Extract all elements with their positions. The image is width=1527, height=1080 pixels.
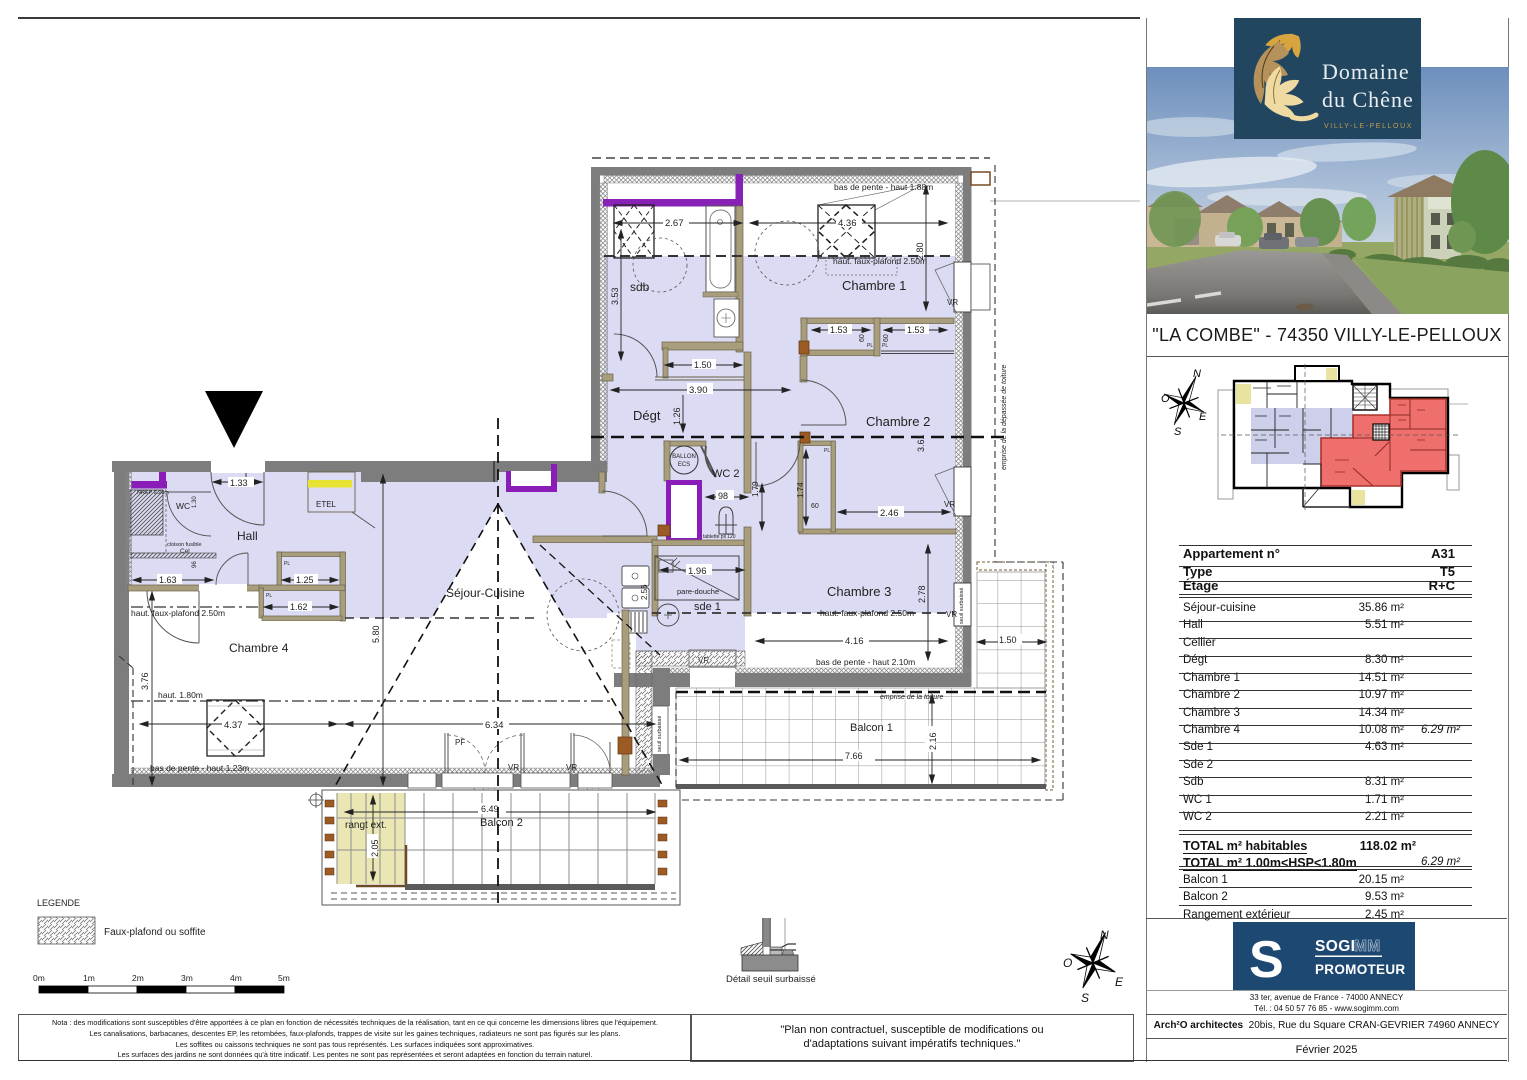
svg-text:3.90: 3.90 xyxy=(689,385,708,396)
svg-text:3.61: 3.61 xyxy=(916,434,926,452)
svg-text:Détail seuil surbaissé: Détail seuil surbaissé xyxy=(726,974,816,985)
svg-text:Chambre 3: Chambre 3 xyxy=(827,584,891,599)
svg-text:Hall: Hall xyxy=(237,529,258,543)
svg-text:1m: 1m xyxy=(83,973,95,983)
svg-text:0m: 0m xyxy=(33,973,45,983)
svg-text:O: O xyxy=(1161,393,1170,405)
svg-text:VR: VR xyxy=(508,763,519,772)
svg-text:BALLON: BALLON xyxy=(672,454,696,460)
svg-text:96: 96 xyxy=(192,561,198,568)
svg-text:2.46: 2.46 xyxy=(880,508,899,519)
svg-text:tablette pll 120: tablette pll 120 xyxy=(703,534,736,540)
svg-text:VILLY-LE-PELLOUX: VILLY-LE-PELLOUX xyxy=(1324,123,1413,130)
svg-text:Faux-plafond ou soffite: Faux-plafond ou soffite xyxy=(104,927,206,938)
svg-text:O: O xyxy=(1063,956,1072,970)
svg-text:pare-douche: pare-douche xyxy=(677,587,719,596)
svg-text:LEGENDE: LEGENDE xyxy=(37,898,80,908)
svg-text:2.67: 2.67 xyxy=(665,218,684,229)
svg-text:NREP 2.20m: NREP 2.20m xyxy=(137,490,169,496)
svg-text:S: S xyxy=(1249,931,1284,989)
svg-text:1.62: 1.62 xyxy=(290,602,308,612)
svg-text:Balcon 1: Balcon 1 xyxy=(850,722,893,734)
svg-text:1.25: 1.25 xyxy=(296,575,314,585)
svg-text:4.37: 4.37 xyxy=(224,720,243,731)
svg-text:Chambre 4: Chambre 4 xyxy=(229,641,289,655)
svg-text:haut. 1.80m: haut. 1.80m xyxy=(158,690,203,700)
svg-text:60: 60 xyxy=(883,334,890,342)
svg-text:ECS: ECS xyxy=(678,462,690,468)
svg-text:4.16: 4.16 xyxy=(845,636,864,647)
svg-text:Chambre 1: Chambre 1 xyxy=(842,278,906,293)
svg-text:PL: PL xyxy=(824,448,830,454)
svg-text:Cel: Cel xyxy=(180,548,190,555)
svg-text:60: 60 xyxy=(859,334,866,342)
svg-text:SOGI: SOGI xyxy=(1315,938,1355,955)
svg-text:WC: WC xyxy=(176,501,190,511)
svg-text:sde 1: sde 1 xyxy=(694,601,721,613)
svg-text:seuil surbaissé: seuil surbaissé xyxy=(959,588,965,624)
svg-text:1.26: 1.26 xyxy=(672,407,682,425)
svg-text:bas de pente - haut 1.23m: bas de pente - haut 1.23m xyxy=(150,763,249,773)
svg-text:S: S xyxy=(1174,426,1182,438)
svg-text:3.76: 3.76 xyxy=(140,672,150,690)
svg-text:6.34: 6.34 xyxy=(485,720,504,731)
svg-text:VR: VR xyxy=(947,298,958,307)
svg-text:5.80: 5.80 xyxy=(371,625,381,643)
svg-text:rangt ext.: rangt ext. xyxy=(345,820,387,831)
svg-text:2.80: 2.80 xyxy=(915,242,925,260)
svg-text:1.63: 1.63 xyxy=(159,575,177,585)
svg-text:sdb: sdb xyxy=(630,280,650,294)
svg-text:N: N xyxy=(1100,928,1109,942)
svg-text:1.96: 1.96 xyxy=(688,566,707,577)
svg-text:seuil surbaissé: seuil surbaissé xyxy=(657,716,663,752)
svg-text:Dégt: Dégt xyxy=(633,408,661,423)
svg-text:PL: PL xyxy=(882,343,888,349)
svg-text:emprise de la dépassée de toit: emprise de la dépassée de toiture xyxy=(1001,364,1008,470)
svg-text:3.53: 3.53 xyxy=(610,287,620,305)
svg-text:2.78: 2.78 xyxy=(917,585,927,603)
svg-text:1.53: 1.53 xyxy=(907,325,925,335)
svg-text:Domaine: Domaine xyxy=(1322,59,1410,84)
svg-text:VR: VR xyxy=(946,610,957,619)
svg-text:haut. faux-plafond 2.50m: haut. faux-plafond 2.50m xyxy=(131,608,225,618)
svg-text:1.53: 1.53 xyxy=(830,325,848,335)
svg-text:VR: VR xyxy=(944,500,955,509)
svg-text:Séjour-Cuisine: Séjour-Cuisine xyxy=(446,586,525,600)
svg-text:3m: 3m xyxy=(181,973,193,983)
svg-text:2.05: 2.05 xyxy=(370,839,380,857)
svg-text:bas de pente - haut 1.88m: bas de pente - haut 1.88m xyxy=(834,182,933,192)
svg-text:2.16: 2.16 xyxy=(928,732,938,750)
svg-text:haut. faux-plafond 2.50m: haut. faux-plafond 2.50m xyxy=(820,608,914,618)
svg-text:1.50: 1.50 xyxy=(694,360,712,370)
svg-text:1.50: 1.50 xyxy=(999,635,1017,645)
svg-text:PL: PL xyxy=(284,561,290,567)
svg-text:4m: 4m xyxy=(230,973,242,983)
svg-text:5m: 5m xyxy=(278,973,290,983)
svg-text:7.66: 7.66 xyxy=(845,751,863,761)
svg-text:ETEL: ETEL xyxy=(316,500,337,509)
svg-text:1.79: 1.79 xyxy=(751,481,760,497)
svg-text:bas de pente - haut 2.10m: bas de pente - haut 2.10m xyxy=(816,657,915,667)
svg-text:PF: PF xyxy=(455,738,465,747)
svg-text:4.36: 4.36 xyxy=(838,218,857,229)
svg-text:PL: PL xyxy=(266,593,272,599)
svg-text:Chambre 2: Chambre 2 xyxy=(866,414,930,429)
svg-text:2.56: 2.56 xyxy=(640,584,649,600)
svg-text:2m: 2m xyxy=(132,973,144,983)
svg-text:1.74: 1.74 xyxy=(796,482,805,498)
svg-text:WC 2: WC 2 xyxy=(712,468,740,480)
svg-text:1.30: 1.30 xyxy=(192,496,198,508)
svg-text:6.49: 6.49 xyxy=(481,804,499,814)
svg-text:haut. faux-plafond 2.50m: haut. faux-plafond 2.50m xyxy=(833,256,927,266)
svg-text:E: E xyxy=(1199,411,1207,423)
svg-text:S: S xyxy=(1081,991,1089,1005)
svg-text:du Chêne: du Chêne xyxy=(1322,87,1414,112)
svg-text:98: 98 xyxy=(718,491,728,501)
svg-text:PROMOTEUR: PROMOTEUR xyxy=(1315,962,1405,977)
svg-text:N: N xyxy=(1193,368,1201,380)
svg-text:VR: VR xyxy=(566,763,577,772)
svg-text:1.33: 1.33 xyxy=(230,478,248,488)
svg-text:PL: PL xyxy=(867,343,873,349)
svg-text:Balcon 2: Balcon 2 xyxy=(480,817,523,829)
svg-text:MM: MM xyxy=(1354,938,1381,955)
svg-text:60: 60 xyxy=(811,503,819,510)
svg-text:E: E xyxy=(1115,975,1124,989)
